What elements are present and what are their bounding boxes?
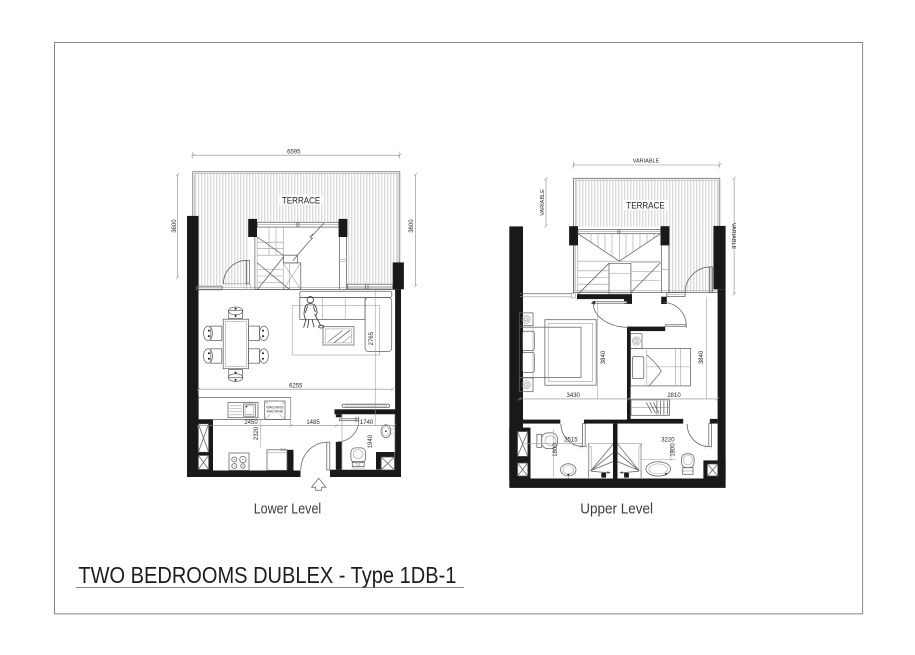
svg-text:6595: 6595 (287, 149, 301, 155)
svg-text:3430: 3430 (567, 393, 581, 399)
svg-text:2765: 2765 (369, 331, 375, 345)
svg-text:WACHING: WACHING (266, 405, 283, 409)
svg-text:VARIABLE: VARIABLE (633, 159, 660, 165)
svg-text:MACHINE: MACHINE (267, 410, 284, 414)
svg-text:VARIABLE: VARIABLE (540, 189, 546, 216)
svg-text:Lower Level: Lower Level (254, 501, 322, 518)
svg-text:3840: 3840 (601, 350, 607, 364)
svg-text:VARIABLE: VARIABLE (730, 223, 736, 250)
svg-text:1740: 1740 (360, 420, 374, 426)
svg-text:1800: 1800 (670, 443, 676, 457)
svg-text:2810: 2810 (667, 393, 681, 399)
svg-text:3840: 3840 (699, 350, 705, 364)
svg-text:2515: 2515 (564, 438, 578, 444)
svg-text:1800: 1800 (553, 443, 559, 457)
svg-text:3600: 3600 (172, 219, 178, 233)
svg-text:TERRACE: TERRACE (282, 195, 320, 206)
svg-text:6255: 6255 (289, 383, 303, 389)
svg-text:1940: 1940 (368, 434, 374, 448)
svg-text:TERRACE: TERRACE (626, 201, 664, 212)
svg-text:TWO BEDROOMS DUBLEX - Type 1DB: TWO BEDROOMS DUBLEX - Type 1DB-1 (78, 562, 456, 588)
svg-text:Upper Level: Upper Level (580, 501, 653, 518)
svg-text:3600: 3600 (409, 219, 415, 233)
svg-text:2320: 2320 (254, 426, 260, 440)
svg-text:2450: 2450 (244, 420, 258, 426)
svg-text:1485: 1485 (306, 420, 320, 426)
svg-text:3220: 3220 (661, 438, 675, 444)
